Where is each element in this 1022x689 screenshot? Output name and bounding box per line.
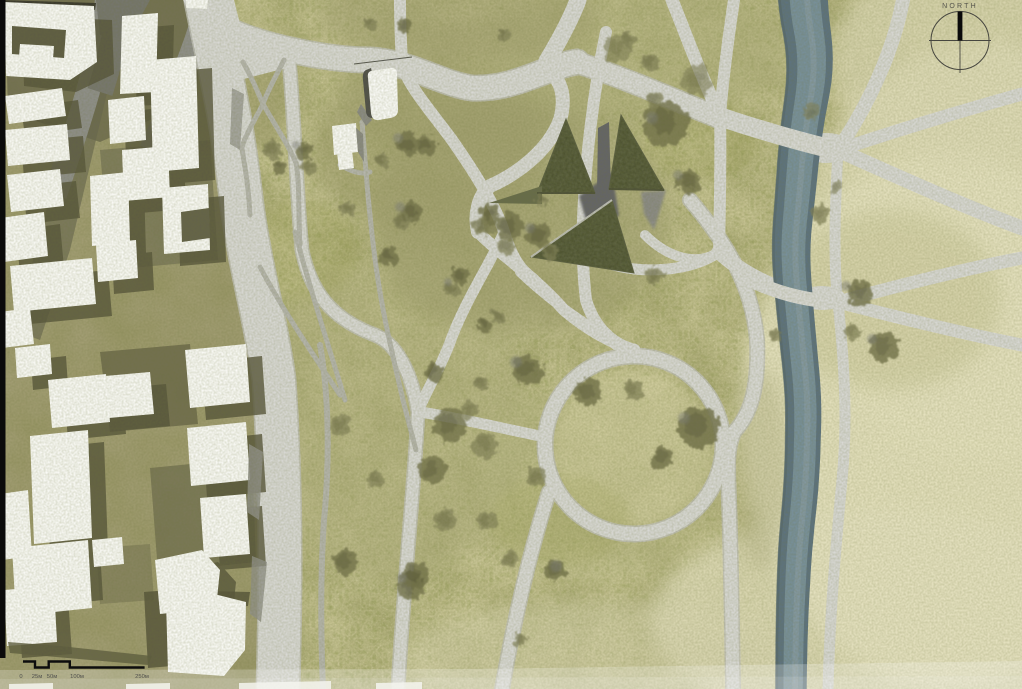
svg-text:NORTH: NORTH: [942, 3, 978, 10]
